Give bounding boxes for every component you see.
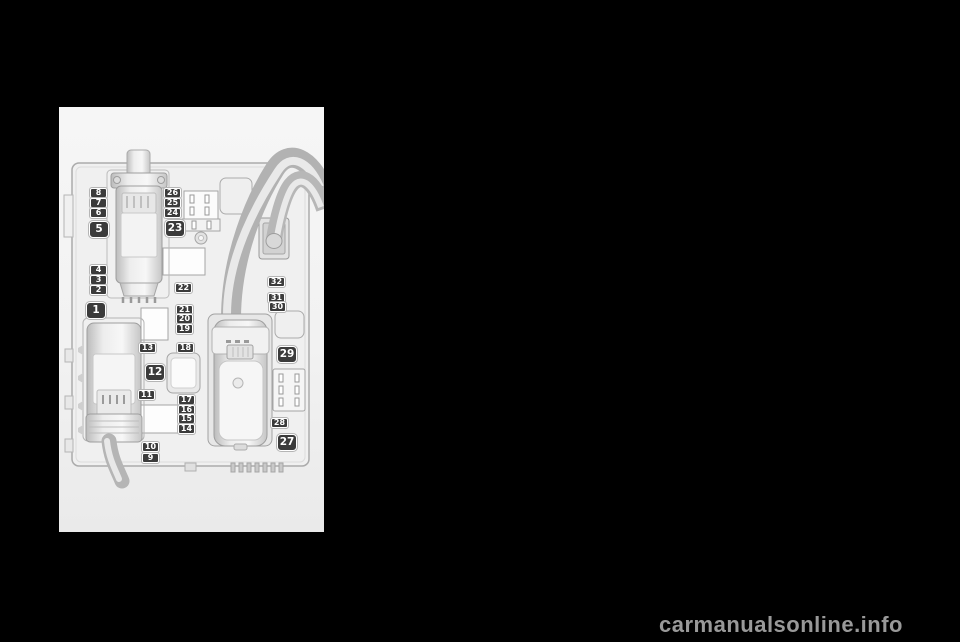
fuse-label-7: 7: [90, 198, 107, 208]
fuse-label-9: 9: [142, 453, 159, 463]
fuse-label-8: 8: [90, 188, 107, 198]
fuse-label-1: 1: [86, 302, 106, 319]
fuse-label-22: 22: [175, 283, 192, 293]
fuse-label-28: 28: [271, 418, 288, 428]
fuse-box-diagram-panel: 8765432126252423222120191813121117161514…: [59, 107, 324, 532]
fuse-label-4: 4: [90, 265, 107, 275]
fuse-label-3: 3: [90, 275, 107, 285]
fuse-label-27: 27: [277, 434, 297, 451]
fuse-label-15: 15: [178, 414, 195, 424]
fuse-label-2: 2: [90, 285, 107, 295]
fuse-label-25: 25: [164, 198, 181, 208]
fuse-label-10: 10: [142, 442, 159, 452]
fuse-label-17: 17: [178, 395, 195, 405]
fuse-label-18: 18: [177, 343, 194, 353]
fuse-label-14: 14: [178, 424, 195, 434]
fuse-label-13: 13: [139, 343, 156, 353]
fuse-label-29: 29: [277, 346, 297, 363]
fuse-label-6: 6: [90, 208, 107, 218]
fuse-label-19: 19: [176, 324, 193, 334]
fuse-label-11: 11: [138, 390, 155, 400]
fuse-label-24: 24: [164, 208, 181, 218]
fuse-label-layer: 8765432126252423222120191813121117161514…: [59, 107, 324, 532]
watermark-text: carmanualsonline.info: [659, 612, 903, 638]
fuse-label-20: 20: [176, 314, 193, 324]
fuse-label-12: 12: [145, 364, 165, 381]
fuse-label-23: 23: [165, 220, 185, 237]
fuse-label-5: 5: [89, 221, 109, 238]
fuse-label-30: 30: [269, 302, 286, 312]
fuse-label-26: 26: [164, 188, 181, 198]
fuse-label-32: 32: [268, 277, 285, 287]
